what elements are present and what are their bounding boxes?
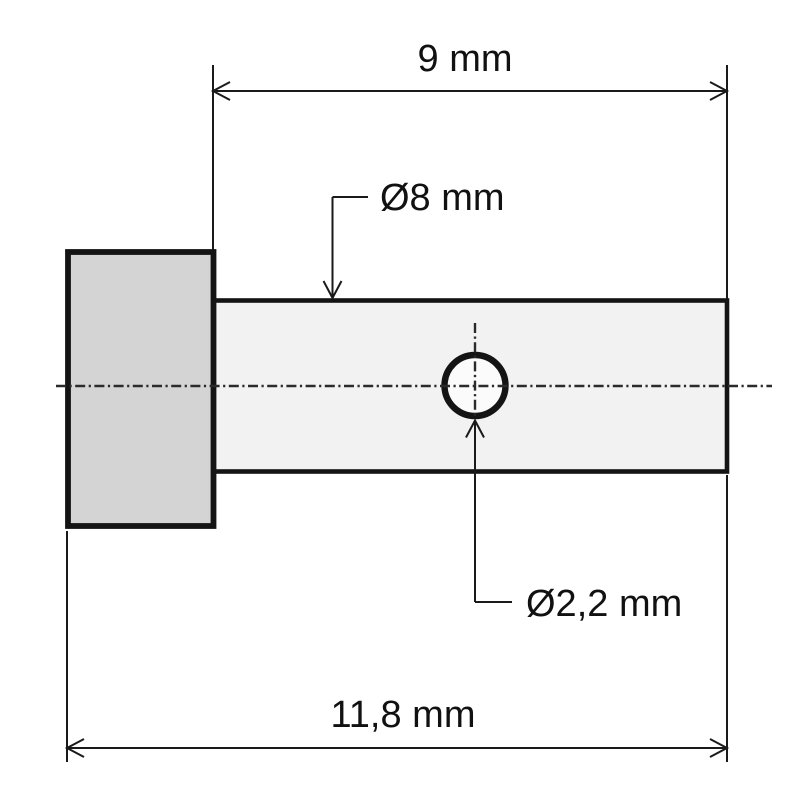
svg-text:Ø2,2 mm: Ø2,2 mm bbox=[526, 583, 682, 625]
svg-text:Ø8 mm: Ø8 mm bbox=[380, 177, 505, 219]
svg-text:11,8 mm: 11,8 mm bbox=[330, 694, 475, 736]
svg-text:9 mm: 9 mm bbox=[418, 38, 513, 80]
